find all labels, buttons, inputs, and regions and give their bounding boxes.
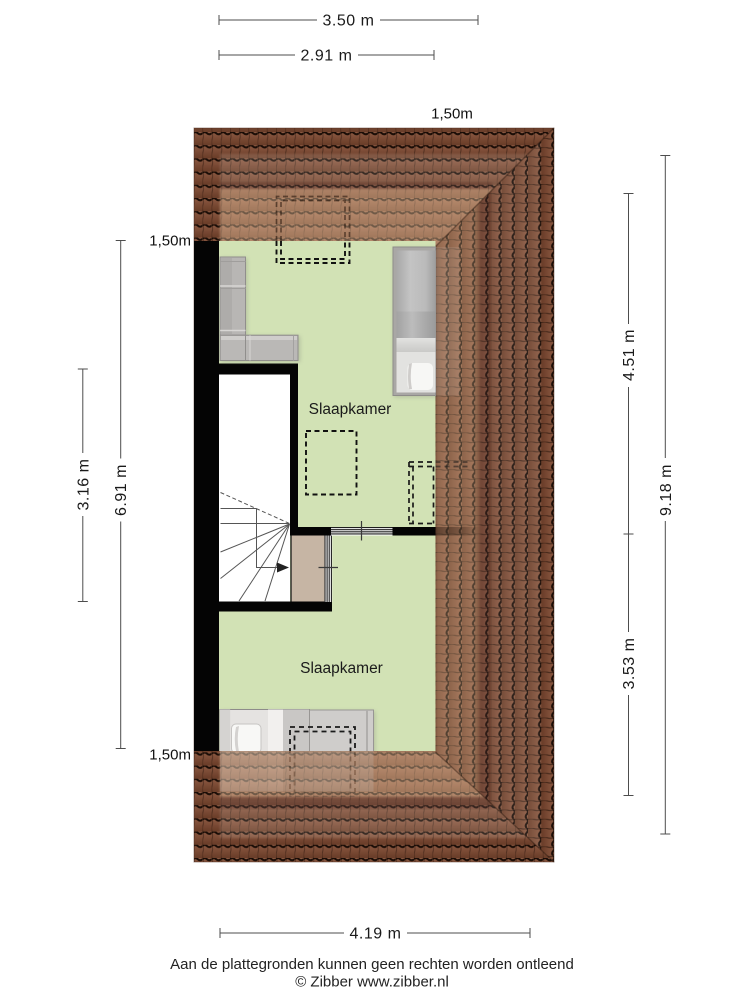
svg-text:© Zibber www.zibber.nl: © Zibber www.zibber.nl [295,974,449,991]
svg-text:6.91 m: 6.91 m [113,464,130,516]
svg-text:4.19 m: 4.19 m [350,926,402,943]
svg-text:4.51 m: 4.51 m [621,329,638,381]
svg-text:9.18 m: 9.18 m [658,464,675,516]
svg-text:Slaapkamer: Slaapkamer [300,660,383,677]
svg-text:2.91 m: 2.91 m [301,48,353,65]
svg-text:3.16 m: 3.16 m [75,459,92,511]
svg-text:1,50m: 1,50m [149,747,191,764]
svg-text:3.50 m: 3.50 m [323,13,375,30]
svg-text:1,50m: 1,50m [149,233,191,250]
svg-text:Aan de plattegronden kunnen ge: Aan de plattegronden kunnen geen rechten… [170,956,574,973]
svg-text:1,50m: 1,50m [431,106,473,123]
svg-text:Slaapkamer: Slaapkamer [309,401,392,418]
svg-text:3.53 m: 3.53 m [621,638,638,690]
